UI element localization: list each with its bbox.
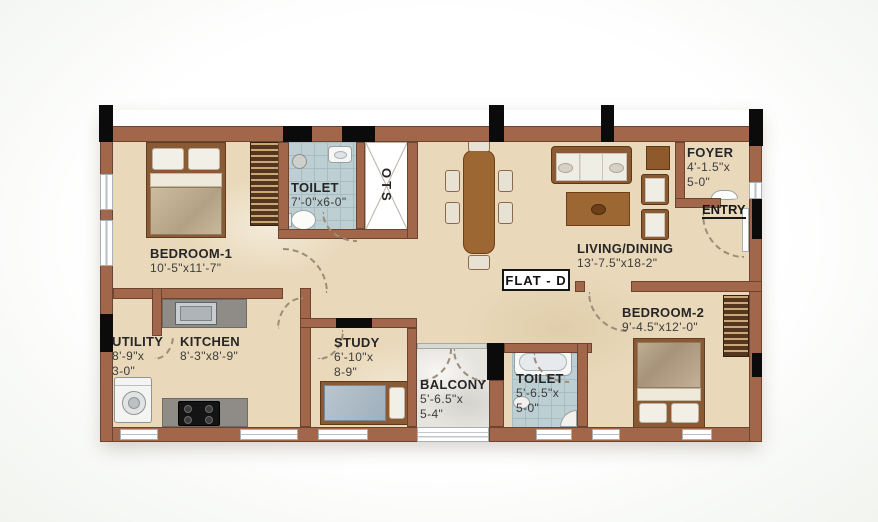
ots-label: OTS xyxy=(379,168,394,204)
window xyxy=(100,220,113,266)
column-marker xyxy=(752,353,762,377)
column-marker xyxy=(342,126,375,142)
room-name: KITCHEN xyxy=(180,334,240,349)
room-dims: 5'-6.5"x xyxy=(420,392,486,407)
column-marker xyxy=(489,105,504,142)
room-name: FOYER xyxy=(687,145,733,160)
dining-chair-icon xyxy=(498,170,513,192)
floor-plan: OTS xyxy=(0,0,878,522)
window xyxy=(100,174,113,210)
room-label-bedroom-2: BEDROOM-2 9'-4.5"x12'-0" xyxy=(622,305,704,335)
column-marker xyxy=(601,105,614,142)
dining-chair-icon xyxy=(498,202,513,224)
room-dims: 6'-10"x xyxy=(334,350,380,365)
single-bed-icon xyxy=(320,381,410,425)
room-name: UTILITY xyxy=(112,334,163,349)
window xyxy=(318,429,368,440)
room-name: TOILET xyxy=(291,180,347,195)
room-label-bedroom-1: BEDROOM-1 10'-5"x11'-7" xyxy=(150,246,232,276)
column-marker xyxy=(99,105,113,142)
flat-label-badge: FLAT - D xyxy=(502,269,570,291)
column-marker xyxy=(749,109,763,146)
wall xyxy=(113,288,283,299)
room-dims: 7'-0"x6-0" xyxy=(291,195,347,210)
room-label-living-dining: LIVING/DINING 13'-7.5"x18-2" xyxy=(577,241,673,271)
room-label-toilet-2: TOILET 5'-6.5"x 5-0" xyxy=(516,371,564,416)
wall xyxy=(631,281,762,292)
window xyxy=(682,429,712,440)
wardrobe-icon xyxy=(250,142,279,226)
room-label-kitchen: KITCHEN 8'-3"x8'-9" xyxy=(180,334,240,364)
wall xyxy=(577,343,588,427)
wall xyxy=(278,142,289,239)
column-marker xyxy=(336,318,372,328)
room-dims: 10'-5"x11'-7" xyxy=(150,261,232,276)
dining-chair-icon xyxy=(468,255,490,270)
room-label-study: STUDY 6'-10"x 8-9" xyxy=(334,335,380,380)
room-name: LIVING/DINING xyxy=(577,241,673,256)
dining-chair-icon xyxy=(445,170,460,192)
window xyxy=(749,182,762,199)
room-dims: 5'-6.5"x xyxy=(516,386,564,401)
wall xyxy=(152,288,162,336)
coffee-table-icon xyxy=(566,192,630,226)
window xyxy=(120,429,158,440)
column-marker xyxy=(283,126,312,142)
room-dims: 13'-7.5"x18-2" xyxy=(577,256,673,271)
entry-label: ENTRY xyxy=(702,202,746,219)
kitchen-sink-icon xyxy=(175,302,217,325)
armchair-icon xyxy=(641,209,669,240)
washbasin-icon xyxy=(328,146,352,163)
room-dims: 5-0" xyxy=(516,401,564,416)
armchair-icon xyxy=(641,174,669,205)
dining-table-icon xyxy=(463,150,495,254)
room-label-toilet-1: TOILET 7'-0"x6-0" xyxy=(291,180,347,210)
room-dims: 4'-1.5"x xyxy=(687,160,733,175)
wall xyxy=(489,427,762,442)
room-dims: 8-9" xyxy=(334,365,380,380)
side-table-icon xyxy=(646,146,670,170)
dining-chair-icon xyxy=(445,202,460,224)
room-label-balcony: BALCONY 5'-6.5"x 5-4" xyxy=(420,377,486,422)
double-bed-icon xyxy=(633,338,705,430)
wall xyxy=(407,142,418,239)
window xyxy=(536,429,572,440)
wall xyxy=(100,126,762,142)
double-bed-icon xyxy=(146,142,226,238)
room-dims: 5-0" xyxy=(687,175,733,190)
room-label-utility: UTILITY 8'-9"x 3-0" xyxy=(112,334,163,379)
wall xyxy=(356,142,365,229)
room-name: BEDROOM-1 xyxy=(150,246,232,261)
wall xyxy=(407,328,417,427)
room-name: BEDROOM-2 xyxy=(622,305,704,320)
room-label-foyer: FOYER 4'-1.5"x 5-0" xyxy=(687,145,733,190)
window xyxy=(592,429,620,440)
column-marker xyxy=(752,197,762,239)
room-name: TOILET xyxy=(516,371,564,386)
room-name: STUDY xyxy=(334,335,380,350)
wardrobe-icon xyxy=(723,295,749,357)
room-dims: 5-4" xyxy=(420,407,486,422)
sofa-icon xyxy=(551,146,632,184)
wall xyxy=(489,380,504,427)
column-marker xyxy=(487,343,504,380)
balcony-railing xyxy=(417,427,489,442)
ots-shaft: OTS xyxy=(365,142,408,230)
window xyxy=(240,429,298,440)
room-dims: 8'-3"x8'-9" xyxy=(180,349,240,364)
geyser-icon xyxy=(292,154,307,169)
gas-stove-icon xyxy=(178,401,220,426)
toilet-seat-icon xyxy=(286,210,316,230)
room-dims: 3-0" xyxy=(112,364,163,379)
room-dims: 9'-4.5"x12'-0" xyxy=(622,320,704,335)
room-dims: 8'-9"x xyxy=(112,349,163,364)
washing-machine-icon xyxy=(114,377,152,423)
room-name: BALCONY xyxy=(420,377,486,392)
wall xyxy=(575,281,585,292)
